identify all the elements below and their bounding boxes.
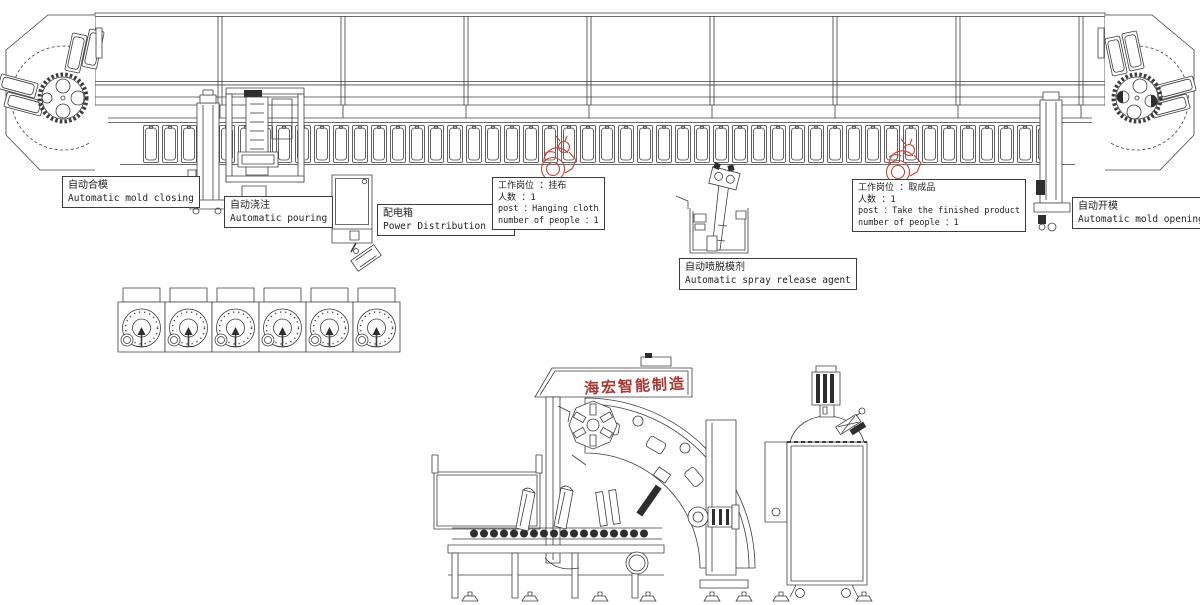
mixer-row [118, 288, 400, 352]
label-post-take-finished: 工作岗位 ：取成品 人数 ：1 post ：Take the finished … [852, 179, 1026, 232]
label-spray-agent-en: Automatic spray release agent [685, 275, 851, 288]
mixer-unit [353, 288, 400, 352]
line-art [0, 0, 1200, 605]
mixing-tank-machine [765, 366, 872, 601]
spray-release-station [676, 162, 748, 253]
post-hanging-line4: number of people ：1 [498, 216, 599, 227]
mixer-unit [118, 288, 165, 352]
factory-layout-drawing: 自动合模 Automatic mold closing 自动浇注 Automat… [0, 0, 1200, 605]
right-turntable [1098, 15, 1196, 170]
post-finished-line1: 工作岗位 ：取成品 [858, 182, 1020, 194]
mixer-unit [212, 288, 259, 352]
post-hanging-line1: 工作岗位 ：挂布 [498, 180, 599, 192]
label-mold-opening-en: Automatic mold opening [1078, 214, 1200, 227]
post-finished-line2: 人数 ：1 [858, 194, 1020, 206]
label-mold-opening: 自动开模 Automatic mold opening [1072, 197, 1200, 229]
post-hanging-line3: post ：Hanging cloth [498, 204, 599, 215]
hanging-mold-row [143, 125, 1056, 165]
label-pouring: 自动浇注 Automatic pouring [224, 196, 333, 228]
label-post-hanging-cloth: 工作岗位 ：挂布 人数 ：1 post ：Hanging cloth numbe… [492, 177, 605, 230]
label-pouring-en: Automatic pouring [230, 213, 327, 226]
pendant-control [351, 243, 381, 271]
left-turntable [0, 15, 104, 170]
mixer-unit [259, 288, 306, 352]
label-mold-closing-zh: 自动合模 [68, 179, 194, 193]
label-pouring-zh: 自动浇注 [230, 199, 327, 213]
label-power-box-zh: 配电箱 [383, 207, 509, 221]
label-mold-closing: 自动合模 Automatic mold closing [62, 176, 200, 208]
label-mold-closing-en: Automatic mold closing [68, 193, 194, 206]
post-hanging-line2: 人数 ：1 [498, 192, 599, 204]
label-mold-opening-zh: 自动开模 [1078, 200, 1200, 214]
post-finished-line4: number of people ：1 [858, 218, 1020, 229]
label-spray-agent: 自动喷脱模剂 Automatic spray release agent [679, 258, 857, 290]
post-finished-line3: post ：Take the finished product [858, 206, 1020, 217]
label-spray-agent-zh: 自动喷脱模剂 [685, 261, 851, 275]
mixer-unit [165, 288, 212, 352]
power-distribution-cabinet [332, 175, 381, 271]
mixer-unit [306, 288, 353, 352]
label-power-box-en: Power Distribution Box [383, 221, 509, 234]
